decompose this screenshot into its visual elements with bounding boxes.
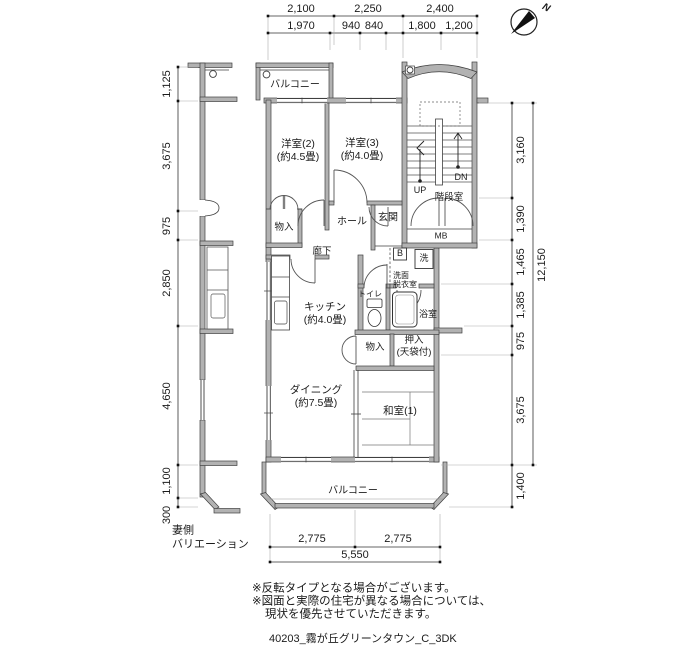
washitsu-label: 和室(1) — [383, 406, 417, 418]
dim-top-2250: 2,250 — [354, 3, 382, 15]
balcony-bottom-rail — [275, 504, 434, 509]
balcony-drain — [263, 71, 270, 78]
note-line3: 現状を優先させていただきます。 — [265, 609, 436, 622]
closet-lower-label: 物入 — [365, 343, 384, 353]
dim-left-3675: 3,675 — [161, 142, 173, 170]
bedroom2-size: (約4.5畳) — [277, 151, 320, 164]
dim-left-2850: 2,850 — [161, 269, 173, 297]
gable-side-line2: バリエーション — [172, 538, 249, 552]
dim-top-1200: 1,200 — [445, 20, 473, 32]
tatami-lines — [362, 392, 434, 445]
stair-drain — [407, 67, 413, 73]
oshiire-label: 押入 (天袋付) — [397, 335, 432, 359]
toilet-bowl — [368, 310, 381, 327]
stair-rail — [436, 119, 443, 185]
washroom-line2: 脱衣室 — [393, 280, 417, 289]
dim-bottom-total-5550: 5,550 — [341, 549, 369, 561]
toilet-tank — [367, 299, 382, 308]
stairs — [406, 66, 473, 185]
dim-top-1800: 1,800 — [408, 20, 436, 32]
closet-upper-doors — [270, 196, 284, 210]
toilet-label: トイレ — [358, 291, 382, 300]
kitchen-name: キッチン — [304, 301, 347, 314]
dining-label: ダイニング (約7.5畳) — [290, 384, 343, 410]
dim-right-total-12150: 12,150 — [536, 248, 548, 282]
dim-left-4650: 4,650 — [161, 382, 173, 410]
balcony-top-label: バルコニー — [270, 80, 320, 91]
bedroom3-size: (約4.0畳) — [341, 150, 384, 163]
dim-top-2100: 2,100 — [287, 3, 315, 15]
bedroom-divider-wall — [325, 103, 329, 230]
floor-plan-page: 2,100 2,250 2,400 1,970 940 840 1,800 1,… — [0, 0, 700, 650]
bedroom2-name: 洋室(2) — [277, 138, 320, 151]
dim-top-1970: 1,970 — [287, 20, 315, 32]
compass — [511, 9, 537, 35]
bedroom3-name: 洋室(3) — [341, 137, 384, 150]
dim-right-3675: 3,675 — [515, 396, 527, 424]
dim-top-940: 940 — [342, 20, 360, 32]
entrance-label: 玄関 — [378, 213, 398, 224]
stairwell-label: 階段室 — [435, 193, 464, 203]
dim-right-1385: 1,385 — [515, 291, 527, 319]
note-line1: ※反転タイプとなる場合がございます。 — [252, 583, 456, 596]
gable-side-note: 妻側 バリエーション — [172, 524, 249, 553]
dim-left-975: 975 — [161, 217, 173, 235]
dim-right-975: 975 — [515, 332, 527, 350]
kitchen-size: (約4.0畳) — [304, 314, 347, 327]
dim-right-3160: 3,160 — [515, 136, 527, 164]
note-line2: ※図面と実際の住宅が異なる場合については、 — [252, 596, 491, 609]
oshiire-name: 押入 — [397, 335, 432, 347]
gable-side-line1: 妻側 — [172, 524, 249, 538]
variation-balcony-drain — [210, 71, 217, 78]
hall-label: ホール — [337, 217, 367, 228]
dim-right-1465: 1,465 — [515, 248, 527, 276]
unit-right-wall — [434, 248, 439, 462]
balcony-top-wall — [256, 63, 333, 68]
closet-upper-label: 物入 — [274, 223, 293, 233]
bedroom3-label: 洋室(3) (約4.0畳) — [341, 137, 384, 163]
variation-balcony-corner — [201, 493, 220, 510]
dim-left-1125: 1,125 — [161, 70, 173, 98]
washroom-label: 洗面 脱衣室 — [393, 271, 417, 289]
dim-right-1400: 1,400 — [515, 472, 527, 500]
up-label: UP — [414, 186, 427, 196]
dim-bottom-2775-right: 2,775 — [384, 533, 412, 545]
dim-top-2400: 2,400 — [426, 3, 454, 15]
mb-wall — [402, 243, 477, 248]
down-label: DN — [455, 173, 468, 183]
washroom-line1: 洗面 — [393, 271, 417, 280]
dining-size: (約7.5畳) — [290, 397, 343, 410]
balcony-bottom-label: バルコニー — [328, 486, 378, 497]
walls — [188, 62, 488, 513]
washer-label: 洗 — [419, 254, 428, 264]
plan-footer-title: 40203_霧が丘グリーンタウン_C_3DK — [269, 633, 457, 645]
kitchen-sink — [275, 301, 288, 324]
b-marker-label: B — [397, 249, 403, 259]
dim-left-300: 300 — [161, 506, 173, 524]
kitchen-label: キッチン (約4.0畳) — [304, 301, 347, 327]
mb-label: MB — [435, 231, 448, 240]
dim-right-1390: 1,390 — [515, 205, 527, 233]
closet-lower-doors — [342, 336, 356, 350]
bathroom-label: 浴室 — [419, 310, 437, 320]
dim-left-1100: 1,100 — [161, 467, 173, 495]
oshiire-note: (天袋付) — [397, 347, 432, 359]
bathtub — [393, 292, 418, 327]
corridor-label: 廊下 — [312, 247, 331, 257]
stair-left-wall — [402, 62, 407, 248]
dim-bottom-2775-left: 2,775 — [298, 533, 326, 545]
dining-name: ダイニング — [290, 384, 343, 397]
bedroom2-label: 洋室(2) (約4.5畳) — [277, 138, 320, 164]
dim-top-840: 840 — [365, 20, 383, 32]
